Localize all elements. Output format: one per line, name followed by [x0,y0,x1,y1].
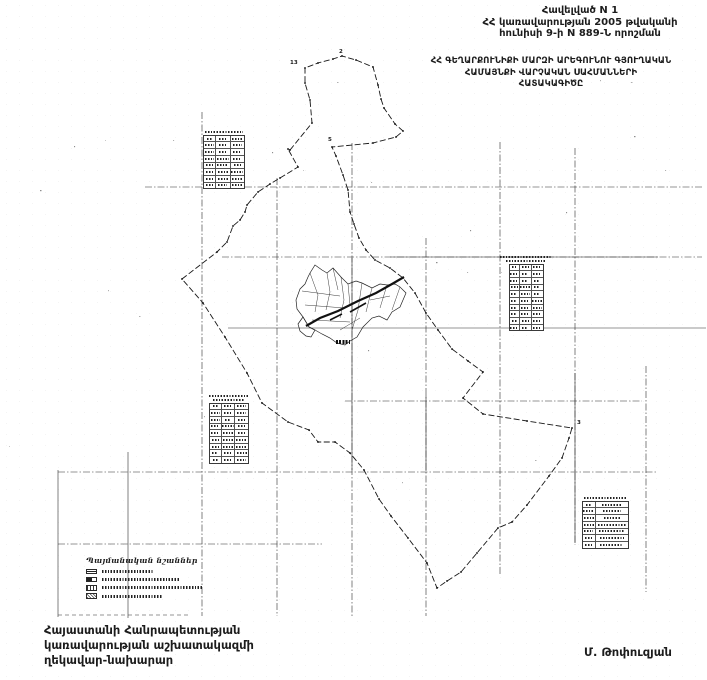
table-row [204,163,244,170]
table-grid [582,501,629,549]
table-grid [209,403,249,464]
table-cell [596,515,627,521]
map-legend: Պայմանական նշաններ [86,556,236,602]
scan-specks [9,80,666,483]
table-cell [583,522,597,528]
table-row [583,542,628,548]
table-cell [235,417,248,423]
table-row [210,450,248,457]
numbered-parcel-symbol [86,585,97,591]
table-row [510,298,543,305]
table-row [510,318,543,325]
table-grid [203,135,245,190]
table-cell [216,163,230,169]
table-cell [596,535,627,541]
table-cell [216,169,230,175]
table-cell [222,410,236,416]
table-cell [510,325,520,331]
table-row [210,444,248,451]
table-cell [231,176,244,182]
table-cell [204,142,216,148]
dotted-area-symbol [86,593,97,599]
table-cell [231,169,244,175]
table-cell [216,156,230,162]
table-cell [222,404,236,410]
table-row [510,325,543,331]
table-cell [210,444,222,450]
table-cell [596,529,627,535]
table-row [583,529,628,536]
signatory-line2: կառավարության աշխատակազմի [44,638,254,653]
table-cell [231,142,244,148]
table-cell [532,325,543,331]
table-cell [204,163,216,169]
table-cell [204,136,216,142]
table-row [510,311,543,318]
boundary-vertex-number: 3 [577,421,581,426]
table-cell [520,318,532,324]
table-row [204,176,244,183]
table-title-line [584,497,626,499]
table-cell [532,291,543,297]
table-cell [216,149,230,155]
data-table-lower-right [581,496,629,549]
table-cell [210,430,222,436]
map-title-line1: ՀՀ ԳԵՂԱՐՔՈՒՆԻՔԻ ՄԱՐԶԻ ԱՐԵԳՈՒՆՈՒ ԳՅՈՒՂԱԿԱ… [395,56,707,68]
table-row [583,515,628,522]
table-cell [235,444,248,450]
table-cell [510,311,520,317]
boundary-vertex-number: 5 [328,138,332,143]
table-row [583,522,628,529]
legend-item [86,569,236,575]
table-row [204,149,244,156]
legend-item-label [102,595,162,598]
table-cell [235,410,248,416]
table-row [510,305,543,312]
table-cell [583,508,597,514]
signature-name: Մ. Թոփուզյան [584,645,672,659]
table-cell [210,437,222,443]
table-cell [235,437,248,443]
table-row [210,417,248,424]
table-cell [583,535,597,541]
table-cell [510,318,520,324]
table-cell [210,417,222,423]
table-cell [510,285,520,291]
table-cell [235,430,248,436]
table-cell [532,265,543,271]
table-cell [510,278,520,284]
table-cell [210,410,222,416]
data-table-right-middle [496,255,556,331]
table-cell [532,278,543,284]
table-cell [532,298,543,304]
table-cell [216,176,230,182]
table-title-line [205,131,244,133]
table-cell [596,522,627,528]
table-cell [532,311,543,317]
table-row [510,285,543,292]
table-row [583,508,628,515]
legend-items [86,569,236,599]
table-title-line [213,399,244,401]
table-cell [204,156,216,162]
table-cell [231,156,244,162]
settlement-area-symbol [86,577,97,583]
legend-item [86,577,236,583]
table-cell [204,183,216,189]
table-cell [596,502,627,508]
table-cell [510,305,520,311]
table-cell [235,424,248,430]
table-cell [510,271,520,277]
table-cell [532,285,543,291]
appendix-line1: Հավելված N 1 [440,5,707,17]
legend-item-label [102,586,202,589]
boundary-line-symbol [86,569,97,575]
table-cell [231,149,244,155]
table-cell [235,404,248,410]
signatory-line1: Հայաստանի Հանրապետության [44,623,254,638]
table-row [204,183,244,189]
table-cell [216,136,230,142]
table-cell [222,450,236,456]
table-row [510,265,543,272]
table-row [510,278,543,285]
table-cell [216,142,230,148]
map-title-line3: ՀԱՏԱԿԱԳԻԾԸ [395,79,707,91]
table-cell [222,437,236,443]
legend-item [86,593,236,599]
table-row [204,136,244,143]
table-cell [520,305,532,311]
appendix-line3: հունիսի 9-ի N 889-Ն որոշման [440,28,707,40]
table-row [583,502,628,509]
appendix-header: Հավելված N 1 ՀՀ կառավարության 2005 թվակա… [440,5,707,40]
table-cell [520,298,532,304]
table-grid [509,264,544,332]
table-cell [216,183,230,189]
table-cell [583,542,597,548]
table-cell [510,298,520,304]
table-cell [231,163,244,169]
table-cell [520,325,532,331]
table-cell [520,311,532,317]
table-cell [510,265,520,271]
signatory-block: Հայաստանի Հանրապետության կառավարության ա… [44,623,254,669]
table-cell [520,285,532,291]
table-cell [520,271,532,277]
table-cell [520,265,532,271]
table-cell [520,278,532,284]
signatory-line3: ղեկավար-նախարար [44,653,254,668]
legend-item-label [102,570,154,573]
table-cell [510,291,520,297]
table-cell [231,136,244,142]
table-cell [210,450,222,456]
table-row [204,142,244,149]
table-cell [583,502,597,508]
table-cell [222,417,236,423]
table-cell [596,508,627,514]
table-cell [222,457,236,463]
table-row [510,291,543,298]
map-title: ՀՀ ԳԵՂԱՐՔՈՒՆԻՔԻ ՄԱՐԶԻ ԱՐԵԳՈՒՆՈՒ ԳՅՈՒՂԱԿԱ… [395,56,707,91]
table-cell [210,457,222,463]
table-row [510,271,543,278]
table-cell [210,404,222,410]
table-cell [222,424,236,430]
table-cell [235,450,248,456]
table-cell [596,542,627,548]
table-title-line [500,256,553,258]
legend-item [86,585,236,591]
scanned-map-sheet: Հավելված N 1 ՀՀ կառավարության 2005 թվակա… [0,0,707,680]
table-row [210,437,248,444]
boundary-vertex-number: 2 [339,50,343,55]
table-cell [231,183,244,189]
main-road [306,277,404,326]
boundary-vertex-number: 13 [290,61,298,66]
legend-title: Պայմանական նշաններ [86,556,236,565]
table-row [210,404,248,411]
table-row [210,457,248,463]
table-cell [204,149,216,155]
map-title-line2: ՀԱՄԱՅՆՔԻ ՎԱՐՉԱԿԱՆ ՍԱՀՄԱՆՆԵՐԻ [395,68,707,80]
table-cell [222,444,236,450]
appendix-line2: ՀՀ կառավարության 2005 թվականի [440,17,707,29]
table-row [210,410,248,417]
table-cell [204,169,216,175]
table-row [210,430,248,437]
table-cell [222,430,236,436]
table-row [204,169,244,176]
data-table-left-middle [206,394,252,464]
table-row [210,424,248,431]
table-title-line [209,395,249,397]
table-row [583,535,628,542]
legend-item-label [102,578,180,581]
table-cell [235,457,248,463]
table-row [204,156,244,163]
settlement-label [336,340,350,344]
table-cell [204,176,216,182]
table-cell [532,318,543,324]
table-cell [532,271,543,277]
data-table-upper-left [202,130,246,189]
table-cell [520,291,532,297]
table-cell [583,515,597,521]
table-cell [210,424,222,430]
table-title-line [506,260,547,262]
settlement-area [296,265,406,345]
table-cell [532,305,543,311]
table-cell [583,529,597,535]
